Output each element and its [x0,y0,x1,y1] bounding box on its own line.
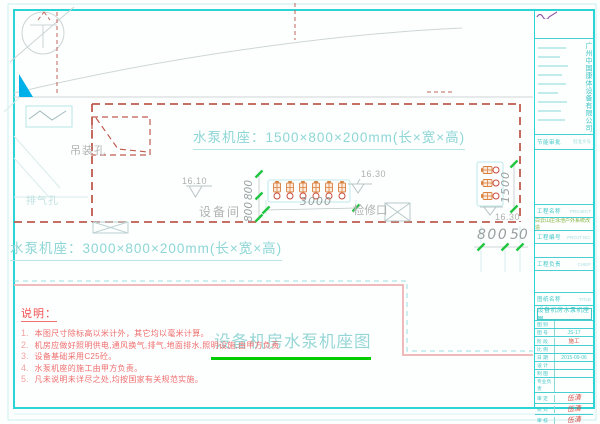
pump-symbol-side [481,193,499,200]
tb-empty-3 [535,271,593,293]
note-item: 1.本图尺寸除标高以米计外，其它均以毫米计算。 [21,323,280,335]
revision-line [538,110,561,112]
tb-row: 设 计 [535,362,593,370]
drawing-title: 设备机房水泵机座图 [538,306,591,321]
project-label-en: PROJECT [570,209,591,214]
tb-project-label-row: 工程名称 PROJECT [535,205,593,218]
notes-list: 1.本图尺寸除标高以米计外，其它均以毫米计算。 2.机房应做好照明供电,通风换气… [21,323,280,381]
pump-symbols-side [481,167,499,200]
dim-3000: 3000 [300,196,332,207]
title-block: 广州中国康体设备有限公司 节能审批 批准文号 工程名称 PROJECT 白云山庄… [534,11,593,407]
project-name: 白云山庄泳池户外系统改造 [535,218,593,231]
equipment-room-label: 设备间 [199,206,241,218]
revision-line [538,47,566,49]
tb-row: 制 图 [535,370,593,378]
hoist-hole-label: 吊装孔 [70,146,106,157]
project-no-label: 工程编号 [537,233,561,241]
pump-symbol-side [481,180,499,187]
tb-row: 专业负责 [535,378,593,393]
signature-scribble [535,11,559,19]
level-left-value: 16.10 [182,177,207,186]
revision-line [538,119,565,121]
tb-empty-2 [535,244,593,258]
note-item: 4.水泵机座的施工由甲方负责。 [21,358,280,370]
dim-1500: 1500 [500,167,512,207]
dim-800-bottom: 800 [477,228,508,242]
project-label: 工程名称 [537,207,561,215]
tb-project-no-row: 工程编号 PROJT NO. [535,231,593,244]
cad-sheet: 水泵机座：1500×800×200mm(长×宽×高) 水泵机座：3000×800… [0,0,600,424]
access-hatch-label: 检修口 [353,206,388,218]
level-marker-mid [348,179,372,193]
tb-project-name-row: 白云山庄泳池户外系统改造 [535,218,593,231]
sheet-name-en: TITLE [579,297,591,302]
pump-symbol-side [481,167,499,174]
terrain-arc [14,28,533,97]
chief-en: CHIEF [578,262,592,267]
spec-left-label: 水泵机座：3000×800×200mm(长×宽×高) [10,242,282,261]
revision-line [538,56,560,58]
tb-row: 图 号JS-17 [535,329,593,337]
tb-chief-row: 工程负责 CHIEF [535,258,593,271]
tb-company-box: 广州中国康体设备有限公司 [535,39,593,135]
revision-line [538,74,562,76]
tb-energy-row: 节能审批 批准文号 [535,135,593,150]
revision-line [538,83,566,85]
access-hatch-box [385,203,410,221]
note-item: 2.机房应做好照明供电,通风换气,排气,地面排水,照明设施,由甲方负责 [21,335,280,347]
tb-row: 图 别 [535,321,593,329]
tb-row: 日 期2015-09-06 [535,354,593,362]
revision-line [538,92,558,94]
level-right-value: 16.30 [495,213,520,222]
drawing-title-box: 设备机房水泵机座图 [537,308,592,320]
tb-row: 比 例 [535,346,593,354]
energy-approval-label: 节能审批 [537,138,561,146]
level-mid-value: 16.30 [361,170,386,179]
blue-triangle-marker [19,74,33,97]
tb-small-rows: 图 别 图 号JS-17 阶 段施工 比 例 日 期2015-09-06 设 计… [535,321,593,407]
dim-800-upper: 800 [244,178,256,202]
pump-symbol [287,181,294,199]
revision-line [538,65,568,67]
survey-circle-icon [10,7,74,62]
notes-heading: 说明： [21,309,57,322]
triangle-sketch-line [4,97,20,112]
spec-top-label: 水泵机座：1500×800×200mm(长×宽×高) [193,131,465,150]
pump-symbol [274,181,281,199]
energy-approval-value: 批准文号 [573,139,591,145]
vent-hole-label: 排气孔 [26,197,59,207]
tb-drawing-title-row: 设备机房水泵机座图 [535,306,593,321]
pump-symbol [339,181,346,199]
tb-sheet-label-row: 图纸名称 TITLE [535,293,593,306]
tb-row: 阶 段施工 [535,337,593,346]
revision-line [538,101,567,103]
chief-label: 工程负责 [537,260,561,268]
tb-empty-1 [535,150,593,205]
project-no-en: PROJT NO. [567,235,591,240]
break-symbol-box [26,106,72,127]
room-outline-dashed [14,104,520,222]
tb-row: 审 核伍清 [535,415,593,424]
note-item: 5.凡未说明未详尽之处,均按国家有关规范实施。 [21,369,280,381]
dim-50-bottom: 50 [510,228,528,242]
wall-opening-box [93,222,128,233]
dim-800-lower: 800 [244,200,256,224]
sheet-name-label: 图纸名称 [537,295,561,303]
level-marker-left [186,186,212,197]
company-name: 广州中国康体设备有限公司 [585,42,592,132]
